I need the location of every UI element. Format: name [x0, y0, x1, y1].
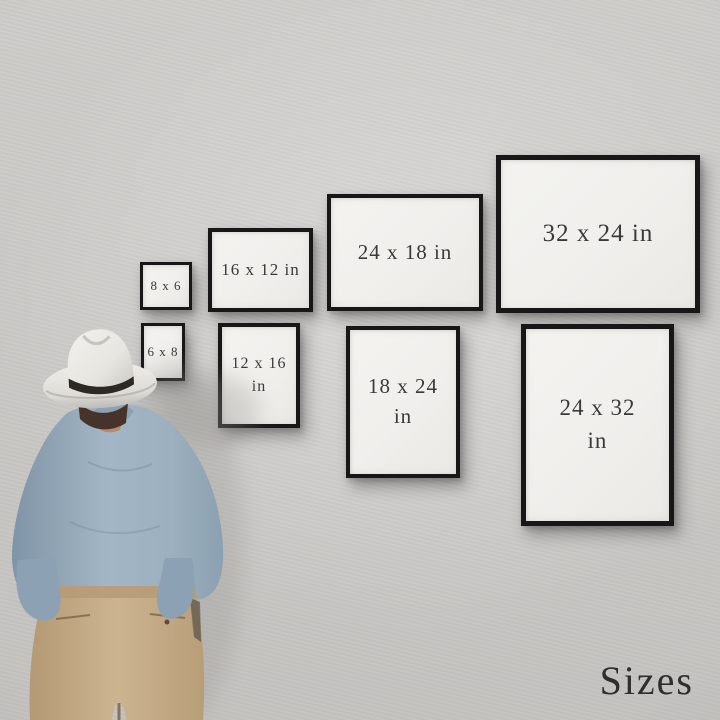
frame-paper: 32 x 24 in — [501, 160, 695, 308]
size-label: 12 x 16 — [232, 353, 287, 376]
frame-8x6-landscape: 8 x 6 — [140, 262, 192, 310]
frame-paper: 12 x 16 in — [222, 327, 296, 424]
frame-12x16-portrait: 12 x 16 in — [218, 323, 300, 428]
frame-paper: 8 x 6 — [143, 265, 189, 307]
size-label: 18 x 24 — [368, 372, 438, 402]
size-label: 16 x 12 in — [221, 258, 299, 282]
size-label-line2: in — [588, 425, 608, 458]
size-label: 24 x 32 — [560, 392, 636, 425]
frame-paper: 24 x 18 in — [331, 198, 479, 307]
frame-18x24-portrait: 18 x 24 in — [346, 326, 460, 478]
frame-6x8-portrait: 6 x 8 — [141, 323, 185, 381]
frame-paper: 16 x 12 in — [212, 232, 309, 308]
size-label: 6 x 8 — [148, 343, 179, 361]
sizes-caption: Sizes — [600, 657, 694, 704]
size-label: 8 x 6 — [151, 277, 182, 295]
frame-paper: 18 x 24 in — [350, 330, 456, 474]
frame-paper: 6 x 8 — [144, 326, 182, 378]
size-label-line2: in — [252, 376, 266, 399]
frame-32x24-landscape: 32 x 24 in — [496, 155, 700, 313]
frame-16x12-landscape: 16 x 12 in — [208, 228, 313, 312]
size-label-line2: in — [394, 402, 412, 432]
frame-paper: 24 x 32 in — [526, 329, 669, 521]
size-guide-scene: 8 x 6 16 x 12 in 24 x 18 in 32 x 24 in 6… — [0, 0, 720, 720]
frame-24x32-portrait: 24 x 32 in — [521, 324, 674, 526]
frame-24x18-landscape: 24 x 18 in — [327, 194, 483, 311]
size-label: 24 x 18 in — [358, 238, 453, 268]
size-label: 32 x 24 in — [543, 216, 654, 252]
